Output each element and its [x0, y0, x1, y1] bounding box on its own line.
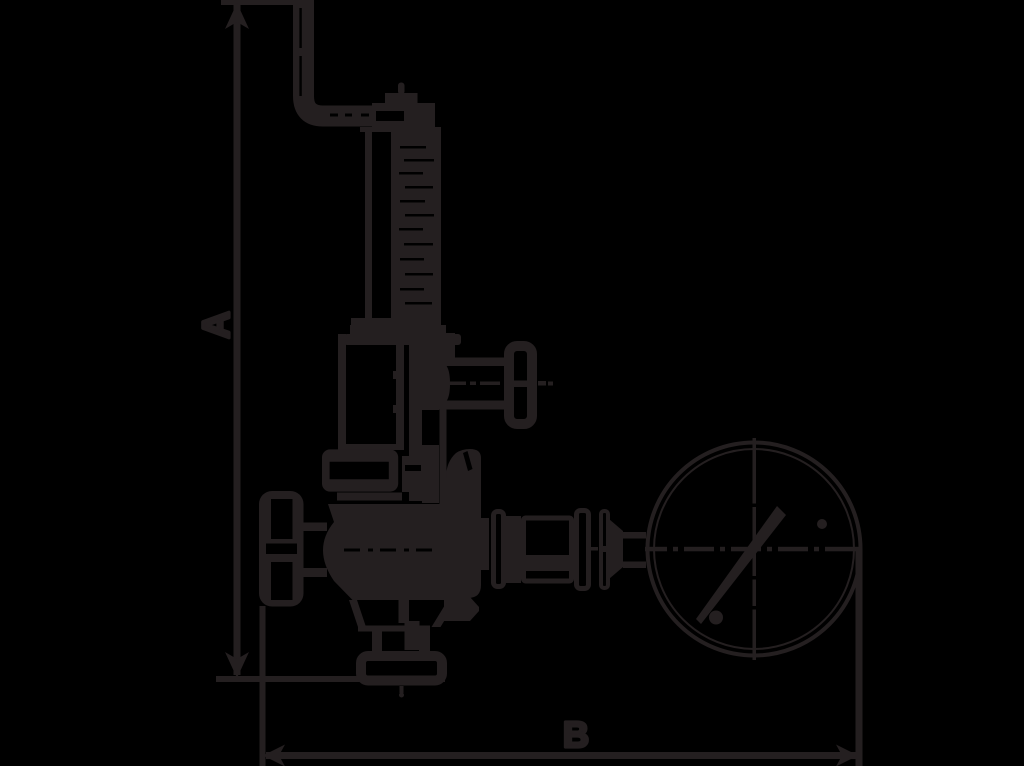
- svg-text:B: B: [563, 714, 589, 755]
- svg-text:A: A: [196, 311, 238, 338]
